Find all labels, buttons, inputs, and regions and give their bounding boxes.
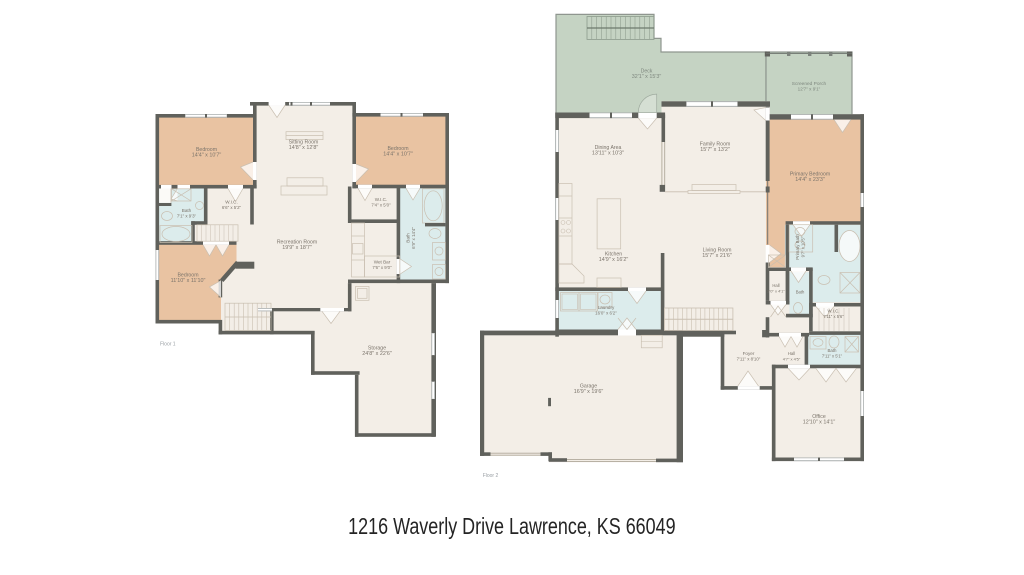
svg-text:6'6" x 5'2": 6'6" x 5'2"	[222, 205, 242, 210]
svg-text:Hall: Hall	[772, 283, 779, 288]
svg-text:7'11" x 5'6": 7'11" x 5'6"	[823, 314, 844, 319]
svg-text:16'9" x 19'6": 16'9" x 19'6"	[574, 389, 604, 395]
svg-text:Primary Bath: Primary Bath	[795, 234, 800, 260]
svg-text:13'11" x 10'3": 13'11" x 10'3"	[592, 151, 624, 157]
svg-text:Laundry: Laundry	[598, 305, 615, 310]
svg-text:W.I.C.: W.I.C.	[375, 197, 388, 202]
svg-text:14'9" x 16'2": 14'9" x 16'2"	[599, 257, 629, 263]
svg-text:14'4" x 10'7": 14'4" x 10'7"	[192, 153, 222, 159]
svg-text:W.I.C.: W.I.C.	[225, 199, 238, 204]
svg-text:Hall: Hall	[788, 351, 795, 356]
svg-text:Bath: Bath	[796, 290, 805, 295]
svg-text:14'4" x 10'7": 14'4" x 10'7"	[383, 152, 413, 158]
svg-text:12'10" x 14'1": 12'10" x 14'1"	[803, 420, 836, 426]
svg-text:Bath: Bath	[827, 348, 837, 353]
svg-text:19'9" x 18'7": 19'9" x 18'7"	[282, 245, 312, 251]
svg-text:7'4" x 5'0": 7'4" x 5'0"	[371, 203, 391, 208]
svg-text:9'7" x 10'5": 9'7" x 10'5"	[801, 236, 806, 257]
svg-text:3'0" x 4'1": 3'0" x 4'1"	[767, 289, 785, 294]
svg-text:7'11" x 8'10": 7'11" x 8'10"	[737, 357, 761, 362]
svg-text:12'7" x 9'1": 12'7" x 9'1"	[798, 87, 821, 92]
svg-text:Floor 1: Floor 1	[160, 342, 176, 348]
svg-text:Foyer: Foyer	[743, 351, 755, 356]
svg-text:14'4" x 23'3": 14'4" x 23'3"	[795, 177, 825, 183]
svg-text:15'7" x 13'2": 15'7" x 13'2"	[700, 147, 730, 153]
svg-text:6'9" x 14'4": 6'9" x 14'4"	[411, 227, 416, 249]
svg-text:4'7" x 4'5": 4'7" x 4'5"	[783, 357, 801, 362]
svg-text:32'1" x 15'3": 32'1" x 15'3"	[632, 74, 662, 80]
svg-text:W.I.C.: W.I.C.	[828, 308, 840, 313]
svg-text:7'1" x 9'3": 7'1" x 9'3"	[177, 214, 197, 219]
svg-text:16'0" x 6'2": 16'0" x 6'2"	[595, 311, 617, 316]
svg-text:Floor 2: Floor 2	[483, 473, 499, 479]
svg-text:11'10" x 11'10": 11'10" x 11'10"	[171, 278, 206, 284]
svg-text:15'7" x 21'6": 15'7" x 21'6"	[702, 253, 732, 259]
svg-text:24'8" x 22'6": 24'8" x 22'6"	[362, 351, 392, 357]
svg-text:7'11" x 5'1": 7'11" x 5'1"	[822, 354, 843, 359]
svg-text:Wet Bar: Wet Bar	[374, 259, 391, 264]
svg-text:14'8" x 12'8": 14'8" x 12'8"	[289, 145, 319, 151]
svg-text:Bath: Bath	[405, 233, 410, 243]
svg-text:Bath: Bath	[182, 208, 192, 213]
svg-text:7'6" x 9'0": 7'6" x 9'0"	[372, 265, 392, 270]
